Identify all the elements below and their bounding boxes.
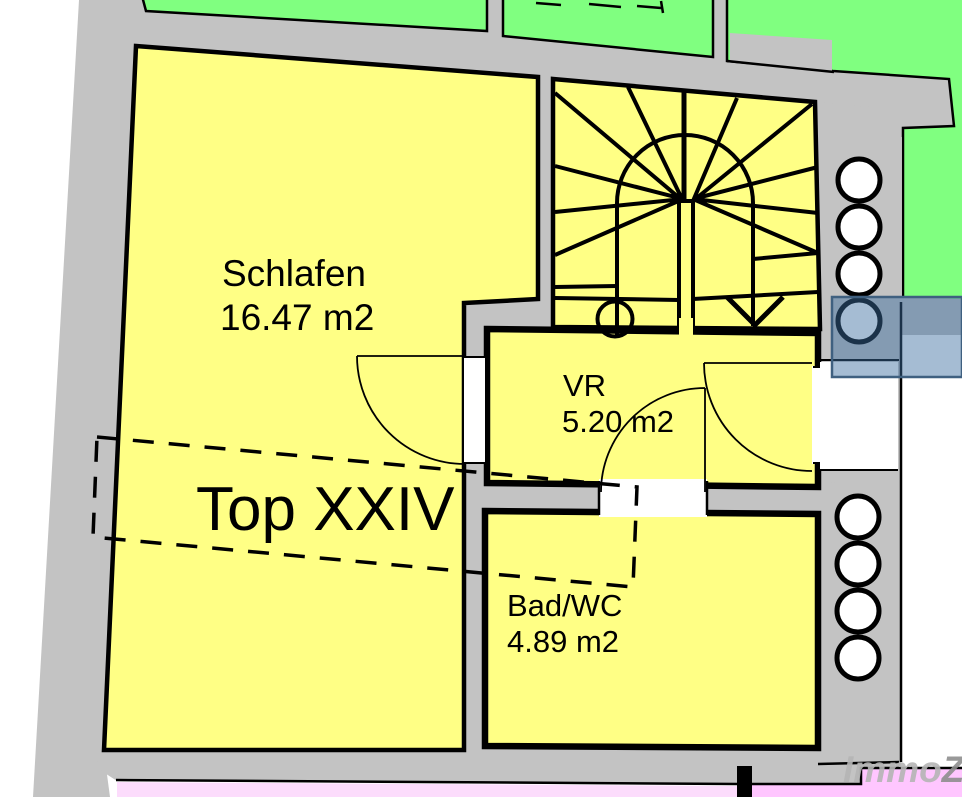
- label-unit: Top XXIV: [196, 475, 455, 544]
- wall-circle-3: [838, 253, 880, 295]
- wall-circle-5: [837, 496, 879, 538]
- wall-circle-7: [837, 590, 879, 632]
- wall-circle-1: [838, 159, 880, 201]
- label-schlafen-name: Schlafen: [222, 253, 366, 294]
- label-vr-name: VR: [563, 368, 606, 403]
- pink-divider-wall: [737, 766, 752, 797]
- wall-circle-6: [837, 543, 879, 585]
- wall-circle-8: [837, 637, 879, 679]
- wall-circle-2: [838, 206, 880, 248]
- watermark-logo: ImmoZ: [843, 749, 962, 790]
- label-schlafen-area: 16.47 m2: [220, 297, 374, 338]
- watermark-part2: Z: [941, 749, 962, 790]
- selected-window-element[interactable]: [832, 297, 962, 377]
- stair-exit-gap: [679, 318, 693, 338]
- floorplan-canvas: Schlafen 16.47 m2 VR 5.20 m2 Bad/WC 4.89…: [0, 0, 962, 797]
- label-badwc-name: Bad/WC: [507, 588, 622, 623]
- watermark-part1: Immo: [843, 749, 942, 790]
- floorplan-viewport: Schlafen 16.47 m2 VR 5.20 m2 Bad/WC 4.89…: [0, 0, 962, 797]
- opening-schlafen: [462, 356, 487, 464]
- label-vr-area: 5.20 m2: [562, 404, 674, 439]
- label-badwc-area: 4.89 m2: [507, 624, 619, 659]
